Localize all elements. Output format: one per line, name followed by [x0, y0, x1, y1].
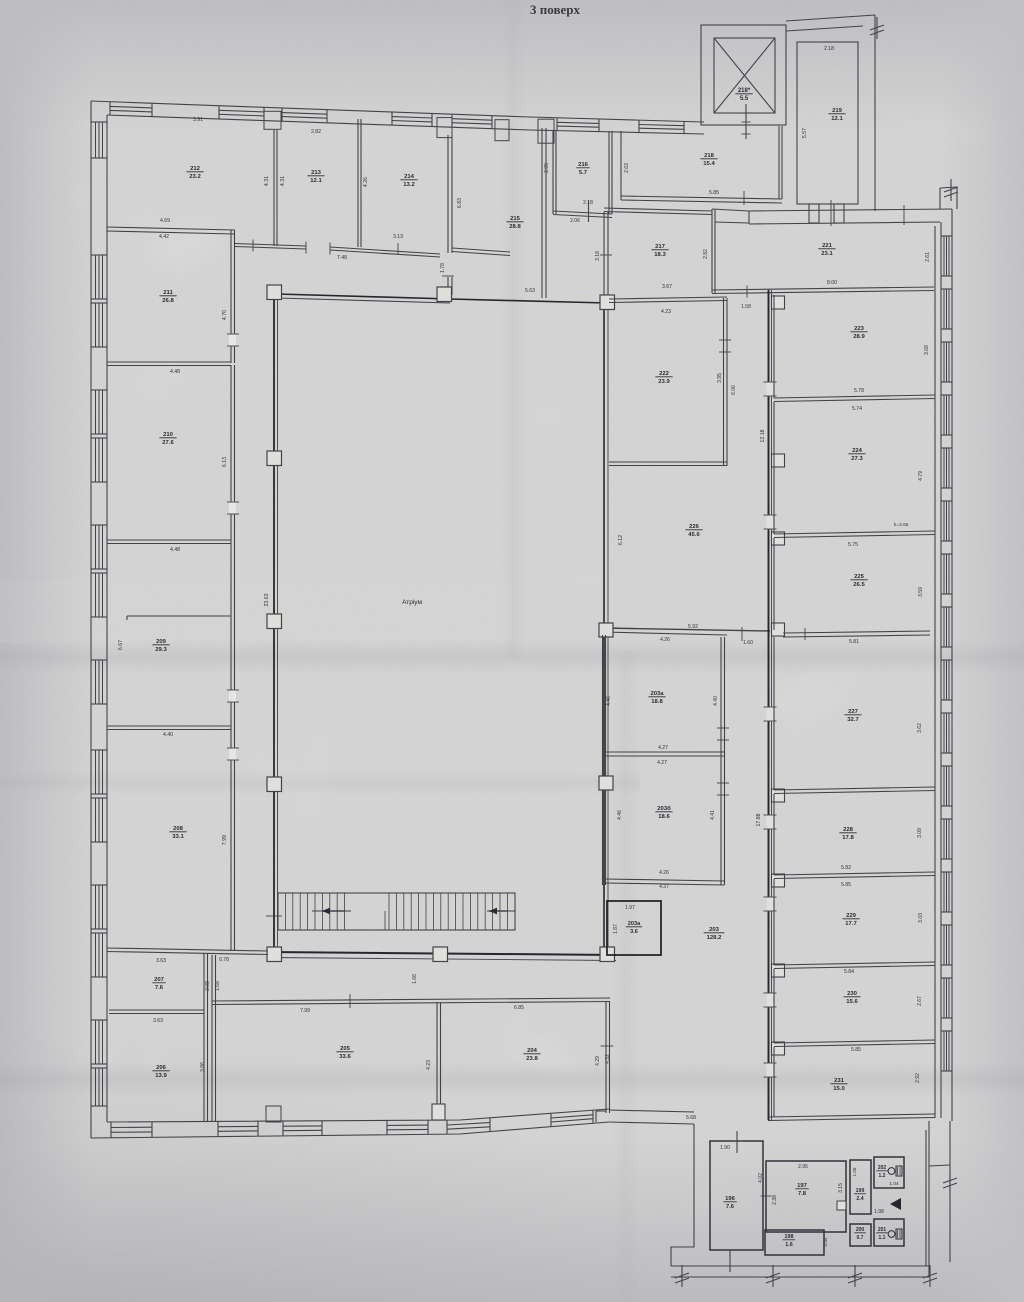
- svg-text:4.79: 4.79: [918, 471, 924, 481]
- svg-text:5.81: 5.81: [849, 639, 859, 645]
- svg-text:4.23: 4.23: [426, 1060, 432, 1070]
- svg-text:6.06: 6.06: [731, 385, 737, 395]
- svg-text:1.2: 1.2: [879, 1173, 886, 1179]
- svg-text:210: 210: [163, 432, 174, 438]
- svg-text:203: 203: [709, 927, 720, 933]
- svg-text:2.82: 2.82: [703, 249, 709, 259]
- svg-text:3.09: 3.09: [917, 828, 923, 838]
- svg-text:5.75: 5.75: [848, 542, 858, 548]
- svg-text:6.85: 6.85: [514, 1005, 524, 1011]
- svg-text:1.58: 1.58: [741, 304, 751, 310]
- svg-text:1.60: 1.60: [743, 640, 753, 646]
- svg-text:45.6: 45.6: [688, 532, 700, 538]
- svg-text:216: 216: [578, 162, 589, 168]
- svg-text:199: 199: [856, 1188, 865, 1194]
- svg-text:17.88: 17.88: [756, 813, 762, 826]
- svg-text:4.23: 4.23: [661, 309, 671, 315]
- svg-text:221: 221: [822, 243, 833, 249]
- svg-text:0.78: 0.78: [219, 957, 229, 963]
- svg-text:12.1: 12.1: [831, 116, 843, 122]
- svg-text:5.57: 5.57: [802, 128, 808, 138]
- svg-text:1.98: 1.98: [874, 1209, 884, 1215]
- svg-text:33.6: 33.6: [339, 1054, 351, 1060]
- svg-text:26.8: 26.8: [162, 298, 174, 304]
- svg-text:2.95: 2.95: [544, 163, 550, 173]
- svg-text:2.92: 2.92: [915, 1073, 921, 1083]
- svg-text:3.03: 3.03: [918, 913, 924, 923]
- svg-text:229: 229: [846, 913, 857, 919]
- svg-text:6.83: 6.83: [457, 198, 463, 208]
- svg-text:218*: 218*: [738, 88, 751, 94]
- svg-text:214: 214: [404, 174, 415, 180]
- svg-text:198: 198: [785, 1234, 794, 1240]
- svg-text:213: 213: [311, 170, 322, 176]
- svg-text:207: 207: [154, 977, 165, 983]
- svg-text:23.8: 23.8: [526, 1056, 538, 1062]
- svg-text:205: 205: [340, 1046, 351, 1052]
- svg-text:2.67: 2.67: [917, 996, 923, 1006]
- svg-text:h=2.65: h=2.65: [894, 522, 909, 528]
- svg-text:4.27: 4.27: [658, 745, 668, 751]
- svg-text:223: 223: [854, 326, 865, 332]
- svg-text:3.86: 3.86: [200, 1062, 206, 1072]
- svg-text:196: 196: [725, 1196, 736, 1202]
- svg-text:1.87: 1.87: [613, 924, 619, 934]
- svg-text:2.06: 2.06: [570, 218, 580, 224]
- svg-text:1.04: 1.04: [889, 1181, 899, 1187]
- svg-text:5.78: 5.78: [854, 388, 864, 394]
- svg-text:211: 211: [163, 290, 173, 296]
- svg-text:2.95: 2.95: [798, 1164, 808, 1170]
- svg-text:5.85: 5.85: [851, 1047, 861, 1053]
- svg-text:226: 226: [689, 524, 700, 530]
- svg-text:1.90: 1.90: [720, 1145, 730, 1151]
- svg-text:17.7: 17.7: [845, 921, 857, 927]
- svg-text:5.68: 5.68: [686, 1115, 696, 1121]
- svg-text:1.97: 1.97: [625, 905, 635, 911]
- svg-text:32.7: 32.7: [847, 717, 859, 723]
- svg-text:15.4: 15.4: [703, 161, 715, 167]
- svg-text:4.40: 4.40: [713, 696, 719, 706]
- svg-text:224: 224: [852, 448, 863, 454]
- svg-text:217: 217: [655, 244, 666, 250]
- svg-text:28.8: 28.8: [509, 224, 521, 230]
- svg-text:3 поверх: 3 поверх: [530, 2, 580, 17]
- svg-text:0.7: 0.7: [857, 1235, 864, 1241]
- svg-text:4.48: 4.48: [170, 547, 180, 553]
- svg-text:33.1: 33.1: [172, 834, 184, 840]
- svg-text:6.13: 6.13: [222, 457, 228, 467]
- svg-text:5.82: 5.82: [841, 865, 851, 871]
- svg-text:3.68: 3.68: [924, 345, 930, 355]
- svg-text:7.6: 7.6: [155, 985, 164, 991]
- svg-text:5.63: 5.63: [525, 288, 535, 294]
- svg-text:3.67: 3.67: [662, 284, 672, 290]
- svg-text:3.13: 3.13: [393, 234, 403, 240]
- svg-text:6.67: 6.67: [118, 640, 124, 650]
- svg-text:18.3: 18.3: [654, 252, 666, 258]
- svg-text:3.59: 3.59: [918, 587, 924, 597]
- svg-text:6.12: 6.12: [618, 535, 624, 545]
- svg-text:4.37: 4.37: [659, 884, 669, 890]
- svg-text:7.99: 7.99: [222, 835, 228, 845]
- svg-text:200: 200: [856, 1227, 865, 1233]
- svg-text:23.9: 23.9: [658, 379, 670, 385]
- svg-text:219: 219: [832, 108, 843, 114]
- svg-text:201: 201: [878, 1227, 887, 1233]
- svg-text:1.08: 1.08: [852, 1167, 857, 1176]
- svg-text:203а: 203а: [650, 691, 664, 697]
- svg-text:13.2: 13.2: [403, 182, 415, 188]
- svg-text:128.2: 128.2: [707, 935, 722, 941]
- svg-text:228: 228: [843, 827, 854, 833]
- svg-text:7.99: 7.99: [300, 1008, 310, 1014]
- svg-text:7.48: 7.48: [337, 255, 347, 261]
- svg-text:7.8: 7.8: [798, 1191, 807, 1197]
- svg-text:17.8: 17.8: [842, 835, 854, 841]
- svg-text:2.38: 2.38: [772, 1195, 778, 1205]
- svg-text:0.85: 0.85: [823, 1237, 828, 1246]
- svg-text:2.08: 2.08: [205, 981, 211, 991]
- svg-text:5.85: 5.85: [709, 190, 719, 196]
- svg-text:Атріум: Атріум: [402, 598, 422, 606]
- svg-text:231: 231: [834, 1078, 845, 1084]
- svg-text:23.63: 23.63: [264, 593, 270, 606]
- svg-text:4.27: 4.27: [657, 760, 667, 766]
- svg-text:197: 197: [797, 1183, 808, 1189]
- svg-text:4.46: 4.46: [606, 696, 612, 706]
- svg-text:5.84: 5.84: [844, 969, 854, 975]
- svg-text:2.61: 2.61: [925, 252, 931, 262]
- svg-text:27.3: 27.3: [851, 456, 863, 462]
- svg-text:4.29: 4.29: [595, 1056, 601, 1066]
- svg-text:12.1: 12.1: [310, 178, 322, 184]
- svg-text:5.85: 5.85: [841, 882, 851, 888]
- svg-text:204: 204: [527, 1048, 538, 1054]
- svg-text:12.18: 12.18: [760, 429, 766, 442]
- svg-text:4.02: 4.02: [758, 1173, 764, 1183]
- svg-text:203а: 203а: [628, 921, 641, 927]
- svg-text:29.3: 29.3: [155, 647, 167, 653]
- svg-text:2.4: 2.4: [856, 1196, 863, 1202]
- svg-text:209: 209: [156, 639, 167, 645]
- svg-text:4.26: 4.26: [659, 870, 669, 876]
- svg-text:26.5: 26.5: [853, 582, 865, 588]
- svg-text:3.18: 3.18: [595, 251, 601, 261]
- svg-text:4.69: 4.69: [160, 218, 170, 224]
- svg-text:7.6: 7.6: [726, 1204, 735, 1210]
- svg-text:4.42: 4.42: [159, 234, 169, 240]
- svg-text:2.18: 2.18: [824, 46, 834, 52]
- svg-text:5.74: 5.74: [852, 406, 862, 412]
- svg-text:222: 222: [659, 371, 670, 377]
- svg-text:4.46: 4.46: [617, 810, 623, 820]
- svg-text:1.6: 1.6: [785, 1242, 793, 1248]
- svg-text:28.9: 28.9: [853, 334, 865, 340]
- svg-text:4.70: 4.70: [222, 310, 228, 320]
- svg-text:4.48: 4.48: [170, 369, 180, 375]
- svg-text:3.15: 3.15: [838, 1183, 844, 1193]
- svg-text:1.66: 1.66: [412, 974, 418, 984]
- svg-text:3.63: 3.63: [153, 1018, 163, 1024]
- svg-text:208: 208: [173, 826, 184, 832]
- svg-text:15.6: 15.6: [846, 999, 858, 1005]
- svg-text:225: 225: [854, 574, 865, 580]
- svg-text:5.92: 5.92: [688, 624, 698, 630]
- svg-text:3.91: 3.91: [193, 117, 203, 123]
- svg-text:227: 227: [848, 709, 859, 715]
- svg-text:1.1: 1.1: [879, 1235, 886, 1241]
- svg-text:206: 206: [156, 1065, 167, 1071]
- svg-text:23.1: 23.1: [821, 251, 833, 257]
- svg-text:218: 218: [704, 153, 715, 159]
- svg-text:13.9: 13.9: [155, 1073, 167, 1079]
- svg-text:3.95: 3.95: [717, 373, 723, 383]
- svg-text:212: 212: [190, 166, 201, 172]
- svg-text:23.2: 23.2: [189, 174, 201, 180]
- svg-text:3.62: 3.62: [917, 723, 923, 733]
- svg-text:8.00: 8.00: [827, 280, 837, 286]
- svg-text:15.0: 15.0: [833, 1086, 845, 1092]
- svg-text:2.82: 2.82: [311, 129, 321, 135]
- svg-text:4.40: 4.40: [163, 732, 173, 738]
- svg-text:1.78: 1.78: [440, 263, 446, 273]
- svg-text:215: 215: [510, 216, 521, 222]
- svg-text:4.41: 4.41: [710, 810, 716, 820]
- svg-text:5.5: 5.5: [740, 96, 749, 102]
- svg-text:3.6: 3.6: [630, 929, 638, 935]
- svg-text:2.63: 2.63: [624, 163, 630, 173]
- svg-text:203б: 203б: [657, 805, 671, 812]
- svg-text:230: 230: [847, 991, 858, 997]
- svg-text:3.63: 3.63: [156, 958, 166, 964]
- svg-text:4.26: 4.26: [660, 637, 670, 643]
- svg-text:4.26: 4.26: [363, 177, 369, 187]
- svg-text:5.7: 5.7: [579, 170, 588, 176]
- svg-text:202: 202: [878, 1165, 887, 1171]
- svg-text:18.6: 18.6: [658, 814, 670, 820]
- svg-text:18.8: 18.8: [651, 699, 663, 705]
- svg-text:4.31: 4.31: [280, 176, 286, 186]
- svg-text:4.31: 4.31: [264, 176, 270, 186]
- svg-text:27.6: 27.6: [162, 440, 174, 446]
